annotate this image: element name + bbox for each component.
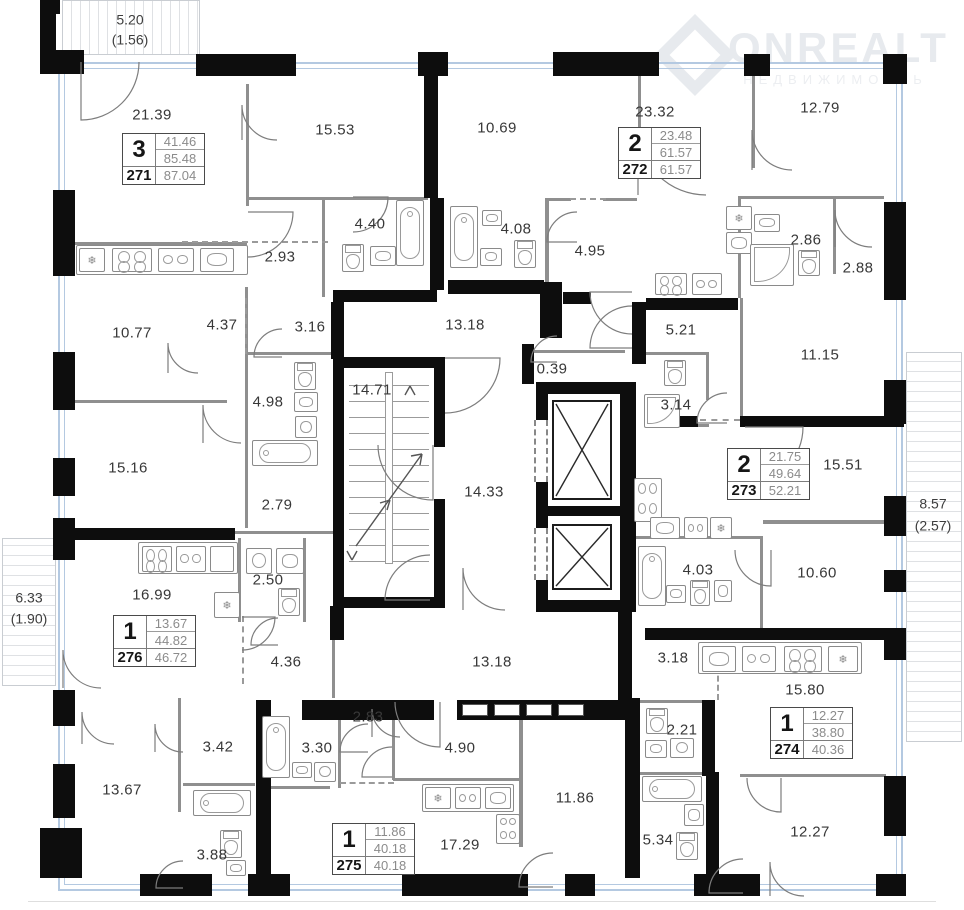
sink — [650, 517, 680, 539]
partition-wall — [392, 710, 395, 780]
room-area-label: 4.95 — [575, 243, 606, 260]
toilet — [798, 250, 820, 276]
room-area-label: 2.86 — [791, 232, 822, 249]
floor-plan: ONREALT НЕДВИЖИМОСТЬ 5.20(1.56)6.33(1.90… — [0, 0, 964, 910]
shower — [750, 244, 794, 286]
partition-wall — [752, 62, 755, 168]
room-area-label: 15.80 — [785, 682, 825, 699]
partition-wall — [640, 700, 704, 703]
dashed-opening — [245, 298, 247, 354]
room-area-label: 14.33 — [464, 484, 504, 501]
apartment-room-count: 3 — [123, 134, 156, 166]
apartment-living-area: 13.67 — [147, 616, 195, 632]
dish-icon — [158, 248, 194, 272]
wall — [40, 828, 82, 878]
washing-machine — [670, 738, 694, 758]
wardrobe — [558, 704, 584, 716]
dish-icon — [684, 517, 708, 539]
washing-machine — [246, 548, 272, 574]
partition-wall — [332, 640, 335, 698]
wall — [434, 499, 445, 608]
room-area-label: 3.88 — [197, 847, 228, 864]
apartment-living-area: 12.27 — [804, 708, 852, 724]
sink — [714, 580, 732, 602]
wardrobe — [462, 704, 488, 716]
room-area-label: 13.67 — [102, 782, 142, 799]
room-area-label: 2.93 — [265, 249, 296, 266]
apartment-total-area: 40.36 — [804, 740, 852, 758]
room-area-label: 5.21 — [666, 322, 697, 339]
balcony-reduced-area-label: (2.57) — [915, 517, 952, 536]
toilet — [278, 588, 300, 616]
apartment-total-area: 46.72 — [147, 648, 195, 666]
room-area-label: 3.16 — [295, 319, 326, 336]
room-area-label: 4.98 — [253, 394, 284, 411]
apartment-room-count: 2 — [619, 128, 652, 160]
sink — [292, 762, 312, 778]
balcony-area-label: 5.20 — [116, 11, 143, 30]
partition-wall — [233, 531, 333, 534]
room-area-label: 4.37 — [207, 317, 238, 334]
fridge-icon: ❄ — [710, 517, 732, 539]
partition-wall — [245, 352, 333, 355]
partition-wall — [833, 198, 836, 274]
wall — [548, 506, 624, 516]
staircase-divider — [385, 372, 393, 564]
partition-wall — [338, 710, 341, 788]
wall — [140, 874, 212, 896]
apartment-living-area: 11.86 — [366, 824, 414, 840]
partition-wall — [245, 352, 248, 450]
apartment-living-area: 23.48 — [652, 128, 700, 144]
wall — [55, 528, 235, 540]
fridge-icon: ❄ — [726, 206, 752, 230]
balcony-area-label: 8.57 — [919, 495, 946, 514]
dish-icon — [455, 787, 481, 809]
wall — [424, 62, 438, 198]
dish-icon — [742, 646, 776, 672]
wardrobe — [526, 704, 552, 716]
sink — [684, 804, 704, 826]
apartment-total-area: 52.21 — [761, 481, 809, 499]
wall — [53, 690, 75, 726]
wall — [884, 496, 906, 536]
apartment-area: 85.48 — [156, 150, 204, 166]
stove-burners — [112, 248, 152, 272]
room-area-label: 3.14 — [661, 397, 692, 414]
snowflake-icon: ❄ — [80, 249, 104, 271]
wall — [536, 600, 636, 612]
apartment-info-box-275: 111.8640.1827540.18 — [332, 823, 415, 875]
elevator-shaft — [552, 524, 612, 590]
sink — [702, 646, 736, 672]
wall — [884, 202, 906, 300]
partition-wall — [245, 449, 248, 528]
room-area-label: 2.88 — [843, 260, 874, 277]
partition-wall — [183, 783, 255, 786]
sink — [370, 246, 396, 266]
room-area-label: 2.83 — [353, 709, 384, 726]
toilet — [664, 360, 686, 386]
fridge-icon: ❄ — [79, 248, 105, 272]
wall — [625, 698, 640, 878]
balcony-right — [906, 352, 962, 742]
wall — [884, 776, 906, 836]
wall — [618, 612, 632, 700]
wall — [646, 298, 738, 310]
partition-wall — [178, 698, 181, 812]
wall — [333, 357, 344, 608]
wall — [330, 606, 344, 640]
apartment-total-area: 61.57 — [652, 160, 700, 178]
wall — [331, 302, 344, 359]
washing-machine — [295, 416, 317, 438]
wall — [402, 874, 528, 896]
sink — [294, 392, 318, 412]
room-area-label: 4.08 — [501, 221, 532, 238]
wall — [540, 282, 562, 338]
room-area-label: 10.60 — [797, 565, 837, 582]
apartment-living-area: 41.46 — [156, 134, 204, 150]
room-area-label: 14.71 — [352, 382, 392, 399]
apartment-info-box-272: 223.4861.5727261.57 — [618, 127, 701, 179]
room-area-label: 4.40 — [355, 216, 386, 233]
room-area-label: 15.16 — [108, 460, 148, 477]
dish-icon — [692, 273, 722, 295]
sink — [645, 740, 667, 758]
dashed-opening — [242, 616, 244, 684]
apartment-area: 49.64 — [761, 465, 809, 481]
wall — [53, 458, 75, 496]
apartment-number: 276 — [114, 648, 147, 666]
apartment-number: 272 — [619, 160, 652, 178]
apartment-info-box-273: 221.7549.6427352.21 — [727, 448, 810, 500]
apartment-info-box-274: 112.2738.8027440.36 — [770, 707, 853, 759]
wall — [744, 54, 770, 76]
wall — [333, 357, 445, 368]
room-area-label: 3.18 — [658, 650, 689, 667]
snowflake-icon: ❄ — [727, 207, 751, 229]
partition-wall — [738, 196, 884, 199]
wall — [563, 292, 591, 304]
dashed-opening — [570, 198, 606, 200]
room-area-label: 5.34 — [643, 832, 674, 849]
wall — [333, 597, 445, 608]
wall — [40, 50, 84, 74]
apartment-number: 271 — [123, 166, 156, 184]
toilet — [294, 362, 316, 390]
apartment-area: 38.80 — [804, 724, 852, 740]
snowflake-icon: ❄ — [829, 647, 857, 671]
wall — [434, 357, 445, 447]
wall — [333, 290, 437, 302]
apartment-living-area: 21.75 — [761, 449, 809, 465]
partition-wall — [740, 774, 886, 777]
toilet — [514, 240, 536, 268]
wall — [706, 772, 719, 876]
wall — [196, 54, 296, 76]
wall — [702, 700, 715, 776]
toilet — [646, 708, 668, 734]
partition-wall — [763, 520, 885, 524]
wall — [632, 302, 646, 364]
wall — [522, 344, 534, 384]
room-area-label: 4.36 — [271, 654, 302, 671]
wall — [645, 628, 903, 640]
partition-wall — [603, 198, 637, 201]
balcony-reduced-area-label: (1.56) — [112, 31, 149, 50]
bathtub — [396, 200, 424, 266]
dashed-opening — [700, 419, 740, 421]
apartment-number: 275 — [333, 856, 366, 874]
toilet — [342, 244, 364, 272]
bathtub — [193, 790, 251, 816]
room-area-label: 15.51 — [823, 457, 863, 474]
bathtub — [252, 440, 318, 466]
room-area-label: 2.21 — [667, 722, 698, 739]
apartment-info-box-271: 341.4685.4827187.04 — [122, 133, 205, 185]
elevator-door — [534, 528, 548, 580]
kitchen-unit — [210, 546, 234, 572]
stove-burners — [142, 546, 172, 572]
wardrobe — [494, 704, 520, 716]
toilet — [676, 832, 698, 860]
wall — [883, 54, 907, 84]
wall — [876, 874, 906, 896]
stove-burners — [496, 814, 520, 844]
apartment-number: 274 — [771, 740, 804, 758]
wall — [53, 352, 75, 410]
sink — [754, 214, 780, 232]
room-area-label: 10.69 — [477, 120, 517, 137]
partition-wall — [246, 84, 249, 206]
stove-burners — [784, 646, 822, 672]
room-area-label: 10.77 — [112, 325, 152, 342]
washing-machine — [314, 762, 336, 782]
room-area-label: 3.42 — [203, 739, 234, 756]
wall — [740, 416, 904, 427]
room-area-label: 13.18 — [472, 654, 512, 671]
room-area-label: 12.27 — [790, 824, 830, 841]
partition-wall — [545, 200, 549, 290]
dashed-opening — [182, 241, 328, 243]
wall — [694, 874, 760, 896]
toilet — [690, 580, 710, 606]
partition-wall — [322, 200, 325, 297]
sink — [726, 232, 752, 254]
room-area-label: 3.30 — [302, 740, 333, 757]
apartment-room-count: 1 — [333, 824, 366, 856]
partition-wall — [533, 350, 625, 353]
wall — [565, 874, 595, 896]
apartment-area: 40.18 — [366, 840, 414, 856]
sink — [666, 585, 686, 603]
sink — [485, 787, 511, 809]
wall — [884, 570, 906, 592]
elevator-door — [534, 420, 548, 482]
partition-wall — [645, 352, 709, 355]
room-area-label: 23.32 — [635, 104, 675, 121]
snowflake-icon: ❄ — [426, 788, 450, 808]
wall — [448, 280, 544, 294]
wall — [430, 198, 444, 290]
room-area-label: 2.79 — [262, 497, 293, 514]
bathtub — [642, 776, 702, 802]
room-area-label: 12.79 — [800, 100, 840, 117]
room-area-label: 4.03 — [683, 562, 714, 579]
apartment-room-count: 1 — [771, 708, 804, 740]
apartment-info-box-276: 113.6744.8227646.72 — [113, 615, 196, 667]
partition-wall — [393, 778, 521, 781]
partition-wall — [640, 772, 706, 775]
sink — [480, 248, 502, 266]
snowflake-icon: ❄ — [215, 593, 239, 617]
room-area-label: 21.39 — [132, 107, 172, 124]
room-area-label: 16.99 — [132, 587, 172, 604]
apartment-total-area: 87.04 — [156, 166, 204, 184]
room-area-label: 11.86 — [556, 790, 594, 807]
dashed-opening — [340, 782, 394, 784]
stove-burners — [634, 478, 662, 522]
balcony-reduced-area-label: (1.90) — [11, 610, 48, 629]
partition-wall — [706, 352, 709, 400]
bathtub — [638, 546, 666, 606]
bathtub — [450, 206, 478, 268]
apartment-total-area: 40.18 — [366, 856, 414, 874]
balcony-area-label: 6.33 — [15, 589, 42, 608]
sink — [482, 210, 502, 226]
wall — [248, 874, 290, 896]
room-area-label: 0.39 — [537, 361, 568, 378]
sink — [276, 548, 304, 574]
apartment-room-count: 2 — [728, 449, 761, 481]
apartment-number: 273 — [728, 481, 761, 499]
partition-wall — [740, 298, 743, 416]
apartment-area: 61.57 — [652, 144, 700, 160]
wall — [553, 52, 659, 76]
wall — [53, 764, 75, 818]
bathtub — [262, 716, 290, 778]
room-area-label: 15.53 — [315, 122, 355, 139]
wall — [53, 190, 75, 276]
room-area-label: 2.50 — [253, 572, 284, 589]
partition-wall — [75, 400, 227, 403]
sink — [200, 248, 234, 272]
dish-icon — [176, 546, 206, 572]
partition-wall — [760, 536, 763, 628]
elevator-shaft — [552, 400, 612, 500]
fridge-icon: ❄ — [425, 787, 451, 809]
fridge-icon: ❄ — [828, 646, 858, 672]
apartment-area: 44.82 — [147, 632, 195, 648]
apartment-room-count: 1 — [114, 616, 147, 648]
room-area-label: 4.90 — [445, 740, 476, 757]
stove-burners — [655, 273, 687, 295]
snowflake-icon: ❄ — [711, 518, 731, 538]
room-area-label: 13.18 — [445, 317, 485, 334]
plan-border-line — [28, 901, 936, 902]
room-area-label: 11.15 — [801, 347, 839, 364]
fridge-icon: ❄ — [214, 592, 240, 618]
sink — [226, 860, 246, 876]
room-area-label: 17.29 — [440, 837, 480, 854]
